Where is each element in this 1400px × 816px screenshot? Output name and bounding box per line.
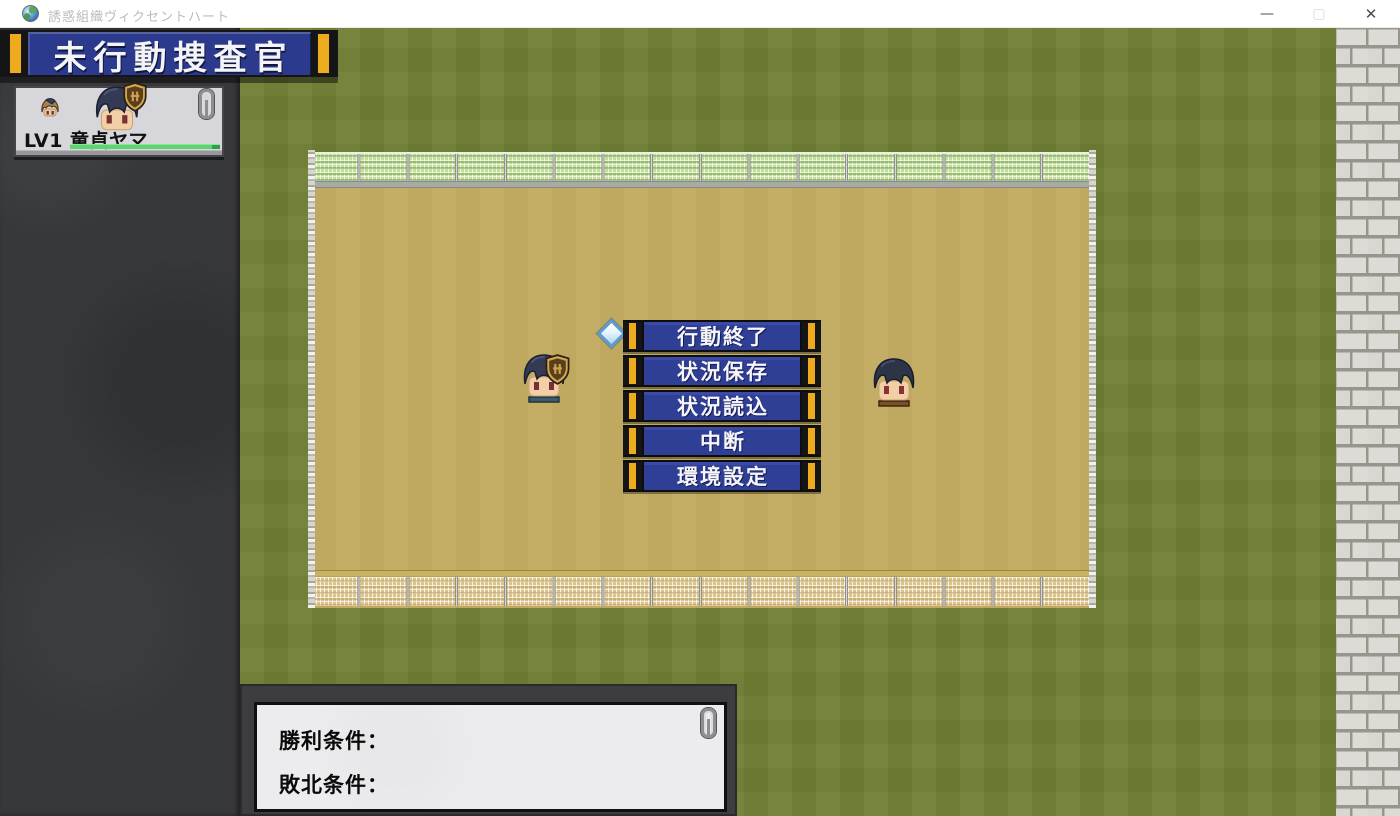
banner-gold-stripe	[10, 34, 21, 73]
enemy-unit-sprite[interactable]	[870, 356, 918, 408]
paperclip-icon	[199, 89, 214, 119]
menu-cap	[802, 462, 821, 490]
menu-item-label: 中断	[698, 426, 746, 456]
victory-conditions-label: 勝利条件：	[279, 725, 389, 755]
menu-item-label: 状況読込	[675, 391, 769, 421]
conditions-box: 勝利条件： 敗北条件：	[254, 702, 727, 812]
minimize-button[interactable]: —	[1244, 0, 1290, 28]
fence-posts	[312, 577, 1092, 606]
menu-item-load-state[interactable]: 状況読込	[623, 390, 821, 422]
mini-unit-icon	[38, 96, 62, 120]
menu-item-settings[interactable]: 環境設定	[623, 460, 821, 492]
close-button[interactable]: ✕	[1348, 0, 1394, 28]
window-title: 誘惑組織ヴィクセントハート	[48, 6, 230, 25]
bottom-fence	[312, 577, 1092, 606]
ally-unit-sprite[interactable]	[520, 352, 568, 404]
top-fence	[312, 152, 1092, 181]
top-fence-rail	[312, 181, 1092, 188]
menu-item-end-action[interactable]: 行動終了	[623, 320, 821, 352]
menu-item-label: 状況保存	[675, 356, 769, 386]
unit-shield-badge-icon	[122, 82, 148, 112]
fence-posts	[312, 154, 1092, 183]
bottom-fence-rail	[312, 570, 1092, 577]
title-bar: 誘惑組織ヴィクセントハート — ▢ ✕	[0, 0, 1400, 28]
menu-cap	[623, 427, 642, 455]
game-window: 誘惑組織ヴィクセントハート — ▢ ✕	[0, 0, 1400, 816]
brick-pattern	[1336, 28, 1400, 816]
menu-item-save-state[interactable]: 状況保存	[623, 355, 821, 387]
menu-item-label: 環境設定	[675, 461, 769, 491]
menu-cap	[623, 322, 642, 350]
menu-cap	[623, 462, 642, 490]
menu-cap	[623, 357, 642, 385]
paperclip-icon	[701, 708, 716, 738]
phase-banner-label: 未行動捜査官	[47, 31, 294, 79]
banner-gold-stripe	[318, 34, 329, 73]
unit-hp-bar	[70, 144, 220, 149]
menu-cap	[802, 427, 821, 455]
unit-status-panel[interactable]: LV1 童貞ヤマ	[14, 86, 224, 157]
field-left-edge	[308, 150, 315, 608]
hp-bar-tip	[212, 145, 220, 149]
phase-banner: 未行動捜査官	[0, 30, 338, 77]
unit-shield-badge-icon	[544, 354, 571, 385]
menu-cap	[623, 392, 642, 420]
field-right-edge	[1089, 150, 1096, 608]
brick-wall	[1336, 28, 1400, 816]
game-viewport: 行動終了 状況保存 状況読込 中断 環境設定	[0, 28, 1400, 816]
app-globe-icon	[22, 5, 39, 22]
maximize-button[interactable]: ▢	[1296, 0, 1342, 28]
menu-cap	[802, 322, 821, 350]
menu-item-suspend[interactable]: 中断	[623, 425, 821, 457]
menu-cap	[802, 357, 821, 385]
menu-item-label: 行動終了	[675, 321, 769, 351]
defeat-conditions-label: 敗北条件：	[279, 769, 389, 799]
action-menu: 行動終了 状況保存 状況読込 中断 環境設定	[623, 320, 821, 495]
panel-bottom-strip	[16, 150, 222, 155]
conditions-panel: 勝利条件： 敗北条件：	[240, 684, 737, 816]
banner-plate: 未行動捜査官	[28, 32, 311, 75]
menu-cap	[802, 392, 821, 420]
